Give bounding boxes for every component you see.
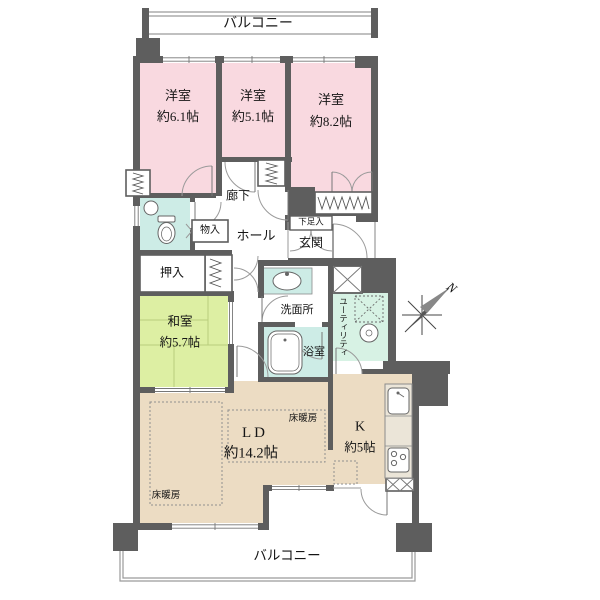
wall-band-right: [383, 361, 450, 374]
ld-area: 約14.2帖: [224, 446, 278, 461]
stove-icon: [388, 448, 409, 472]
balcony-divider-left: [142, 8, 149, 38]
wall-utility-right: [388, 293, 396, 361]
wall-utility-bottom: [362, 369, 383, 374]
balcony-bottom-label: バルコニー: [253, 549, 320, 563]
floor-heating-label-left: 床暖房: [152, 492, 181, 502]
door-entrance: [333, 224, 367, 258]
kitchen-name: K: [355, 421, 365, 436]
oshiire-label: 押入: [160, 267, 184, 280]
compass-star-icon: [402, 288, 449, 335]
wall-bath-bottom: [258, 377, 333, 382]
wall-washitsu-right2: [228, 344, 234, 387]
wall-wash-bath1: [264, 322, 295, 327]
shoe-cabinet-label: 下足入: [298, 218, 324, 227]
washitsu-name: 和室: [167, 315, 192, 328]
washitsu-area: 約5.7帖: [160, 336, 201, 349]
utility-label: ユーティリティ: [339, 297, 348, 357]
balcony-top-label: バルコニー: [223, 18, 293, 33]
bedroom3-area: 約8.2帖: [310, 115, 352, 129]
window-bedroom3: [293, 56, 355, 63]
bathtub-icon: [268, 331, 302, 374]
wall-kitchen-right: [412, 374, 419, 523]
closet-bedroom3: [315, 192, 372, 214]
compass-north-label: N: [443, 278, 461, 297]
ld-name: LD: [242, 426, 268, 442]
wall-washroom-left2: [258, 322, 264, 382]
wall-left: [133, 56, 140, 523]
vanity-sink-icon: [273, 272, 301, 290]
utility-sink-icon: [360, 324, 378, 342]
wall-toilet-stub1: [190, 198, 195, 202]
wall-ld-step: [263, 487, 269, 530]
bedroom2-area: 約5.1帖: [232, 110, 274, 124]
kitchen-area: 約5帖: [344, 441, 375, 454]
closet-bedroom1: [126, 170, 150, 196]
ld-kitchen-passage-floor: [328, 450, 334, 487]
sliding-door-washitsu-hall: [228, 302, 234, 344]
window-bedroom1: [163, 56, 215, 63]
door-bedroom2: [225, 162, 255, 192]
bedroom1-floor: [140, 63, 216, 196]
balcony-divider-right: [371, 8, 378, 38]
bedroom2-name: 洋室: [240, 89, 266, 103]
sliding-door-washitsu-ld: [155, 387, 225, 393]
window-ld-bottom: [172, 523, 258, 530]
storage-label: 物入: [200, 226, 220, 237]
closet-bedroom2: [258, 160, 285, 186]
pillar-bottom-left: [113, 528, 138, 551]
corridor-label: 廊下: [226, 190, 250, 203]
entrance-label: 玄関: [299, 237, 323, 250]
wall-bed1-bed2: [216, 56, 222, 196]
ps-shaft-box: [333, 266, 362, 293]
kitchen-sink-icon: [388, 388, 409, 414]
window-ld-step: [272, 485, 326, 491]
refrigerator-space: [386, 478, 414, 491]
floor-heating-label-right: 床暖房: [289, 415, 318, 425]
bedroom1-name: 洋室: [165, 89, 191, 103]
closet-hall: [205, 255, 232, 292]
wall-washroom-top: [258, 260, 333, 266]
floorplan-canvas: N バルコニー 洋室 約6.1帖 洋室 約5.1帖 洋室 約8.2帖 廊下 ホー…: [0, 0, 600, 600]
kitchen-counter: [385, 384, 412, 478]
toilet-basin-icon: [144, 201, 158, 215]
washroom-label: 洗面所: [281, 305, 314, 317]
bedroom3-name: 洋室: [318, 93, 344, 107]
wall-entrance-corner: [356, 215, 378, 222]
bathroom-label: 浴室: [303, 347, 325, 359]
window-bedroom2: [224, 56, 280, 63]
door-hall-closet: [234, 256, 258, 292]
floorplan-drawing: N: [0, 0, 600, 600]
wall-bed2-bed3: [285, 56, 291, 192]
bedroom1-area: 約6.1帖: [157, 110, 199, 124]
wall-washroom-left1: [258, 266, 264, 298]
compass: N: [402, 278, 461, 335]
window-toilet: [133, 206, 140, 226]
pillar-bottom-right: [396, 523, 432, 552]
door-kitchen-balcony: [361, 489, 387, 515]
wall-ps-block: [362, 258, 396, 293]
hall-label: ホール: [236, 229, 275, 243]
door-bedroom3: [258, 190, 288, 220]
